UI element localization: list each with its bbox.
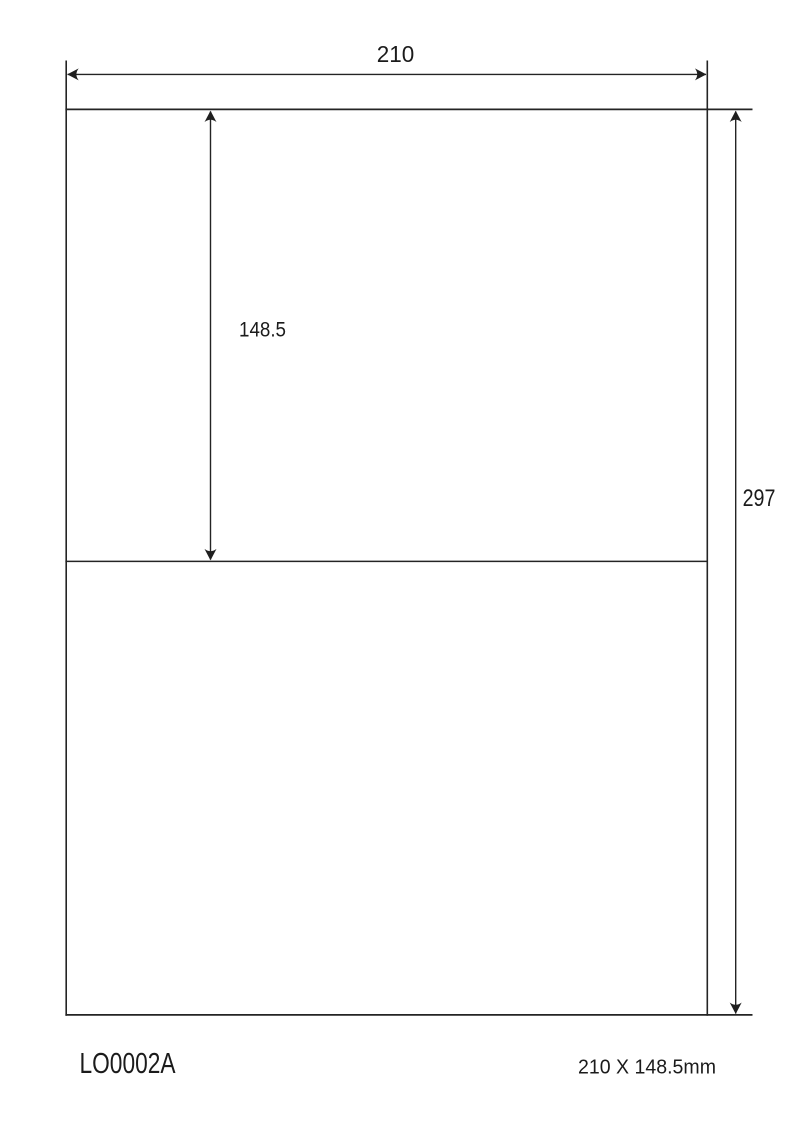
svg-text:LO0002A: LO0002A — [80, 1048, 177, 1080]
svg-text:297: 297 — [743, 485, 776, 512]
svg-text:148.5: 148.5 — [239, 318, 286, 342]
svg-text:210: 210 — [377, 41, 415, 67]
svg-text:210 X 148.5mm: 210 X 148.5mm — [578, 1057, 716, 1079]
